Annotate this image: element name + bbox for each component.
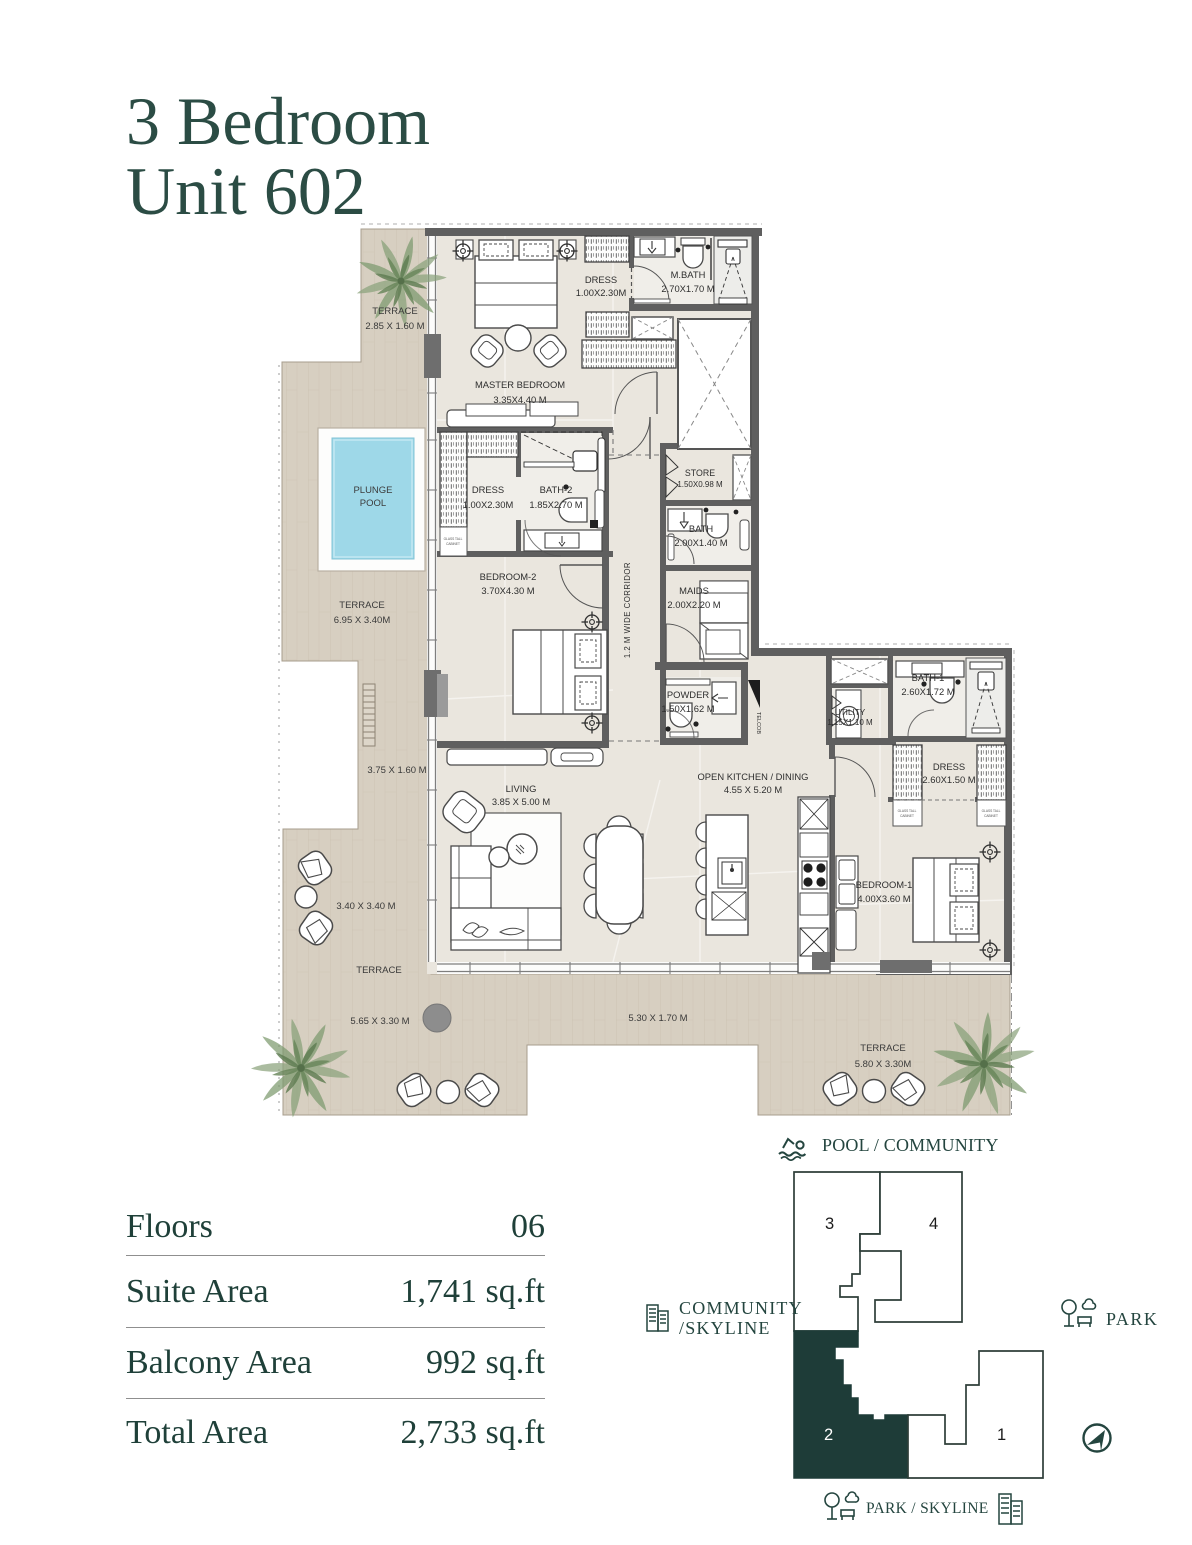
svg-text:/SKYLINE: /SKYLINE: [679, 1318, 771, 1338]
svg-text:COMMUNITY: COMMUNITY: [679, 1298, 803, 1318]
svg-text:POOL / COMMUNITY: POOL / COMMUNITY: [822, 1135, 999, 1155]
svg-text:1: 1: [997, 1426, 1006, 1444]
svg-text:PARK / SKYLINE: PARK / SKYLINE: [866, 1500, 988, 1517]
svg-text:3: 3: [825, 1215, 834, 1233]
svg-text:4: 4: [929, 1215, 938, 1233]
svg-text:2: 2: [824, 1426, 833, 1444]
svg-text:PARK: PARK: [1106, 1309, 1158, 1329]
